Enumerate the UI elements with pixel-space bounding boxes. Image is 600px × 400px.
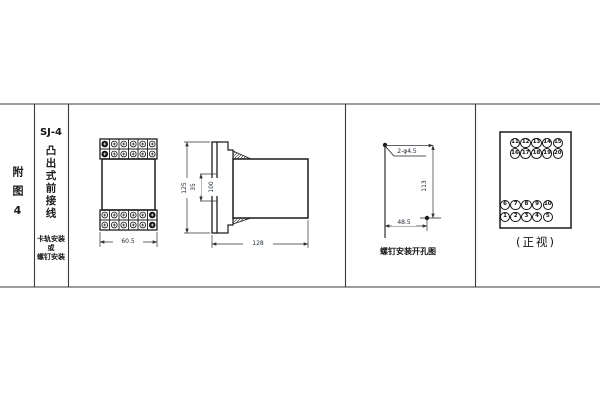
drill-holes-label: 2-φ4.5: [390, 149, 424, 155]
top-clip-hatch: [233, 151, 251, 159]
technical-drawing-page: 附图4 SJ-4 凸出式前接线 卡轨安装 或 螺钉安装 60.5 125 35 …: [0, 0, 600, 400]
terminal-circle: 17: [520, 148, 531, 159]
diagram-linework: [0, 0, 600, 400]
mount-note-line-1: 卡轨安装: [34, 236, 68, 243]
drill-view-caption: 螺钉安装开孔图: [363, 246, 453, 257]
side-view-drawing: [184, 142, 308, 248]
mount-note-line-2: 或: [34, 245, 68, 252]
model-label: SJ-4: [34, 127, 68, 138]
terminal-circle: 16: [510, 148, 521, 159]
terminal-circle: 13: [531, 138, 542, 149]
model-name-vertical: 凸出式前接线: [44, 145, 59, 220]
side-rail-dim-label: 35: [191, 179, 201, 195]
terminal-view-caption: (正视): [505, 234, 567, 250]
terminal-circle: 2: [510, 212, 521, 223]
bottom-clip-hatch: [233, 218, 251, 224]
mount-note-line-3: 螺钉安装: [34, 254, 68, 261]
drill-height-dim-label: 113: [422, 177, 432, 195]
relay-body-front: [102, 159, 155, 210]
side-depth-dim-label: 128: [243, 241, 273, 247]
terminal-circle: 8: [521, 200, 532, 211]
model-name-cell: 凸出式前接线: [34, 145, 68, 229]
drill-width-dim-label: 48.5: [392, 220, 416, 226]
figure-number-cell: 附图4: [0, 166, 34, 238]
top-mount-hole: [383, 143, 387, 147]
terminal-circle: 7: [510, 200, 521, 211]
terminal-circle: 5: [543, 212, 554, 223]
terminal-circle: 3: [521, 212, 532, 223]
front-width-dim-label: 60.5: [113, 239, 143, 245]
terminal-circle: 20: [553, 148, 564, 159]
side-inner-dim-label: 100: [209, 178, 219, 196]
terminal-circle: 18: [531, 148, 542, 159]
relay-body-side: [233, 159, 308, 218]
terminal-circle: 12: [520, 138, 531, 149]
front-view-drawing: [100, 139, 157, 247]
figure-number-label: 附图4: [9, 166, 25, 225]
